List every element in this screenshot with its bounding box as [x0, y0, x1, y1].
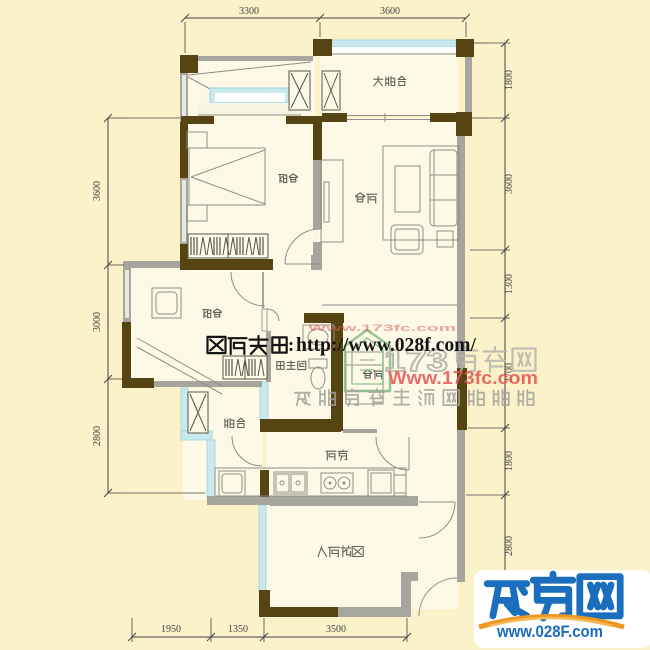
svg-text:3600: 3600	[380, 6, 400, 17]
svg-text:www.028F.com: www.028F.com	[496, 622, 603, 641]
svg-text:1350: 1350	[228, 624, 248, 635]
svg-text:3600: 3600	[504, 174, 515, 194]
svg-text:http://www.028f.com/: http://www.028f.com/	[296, 334, 476, 356]
svg-text:3600: 3600	[92, 181, 103, 201]
svg-text:Www.173fc.com: Www.173fc.com	[308, 323, 456, 333]
svg-text:3300: 3300	[239, 6, 259, 17]
svg-text:3000: 3000	[92, 312, 103, 332]
svg-text::: :	[288, 335, 294, 356]
svg-text:1950: 1950	[161, 624, 181, 635]
svg-text:Www.173fc.com: Www.173fc.com	[388, 368, 538, 388]
svg-text:1800: 1800	[504, 451, 515, 471]
svg-text:3500: 3500	[326, 624, 346, 635]
svg-text:1800: 1800	[504, 70, 515, 90]
svg-text:2800: 2800	[504, 536, 515, 556]
svg-text:1300: 1300	[504, 274, 515, 294]
svg-text:2800: 2800	[92, 426, 103, 446]
